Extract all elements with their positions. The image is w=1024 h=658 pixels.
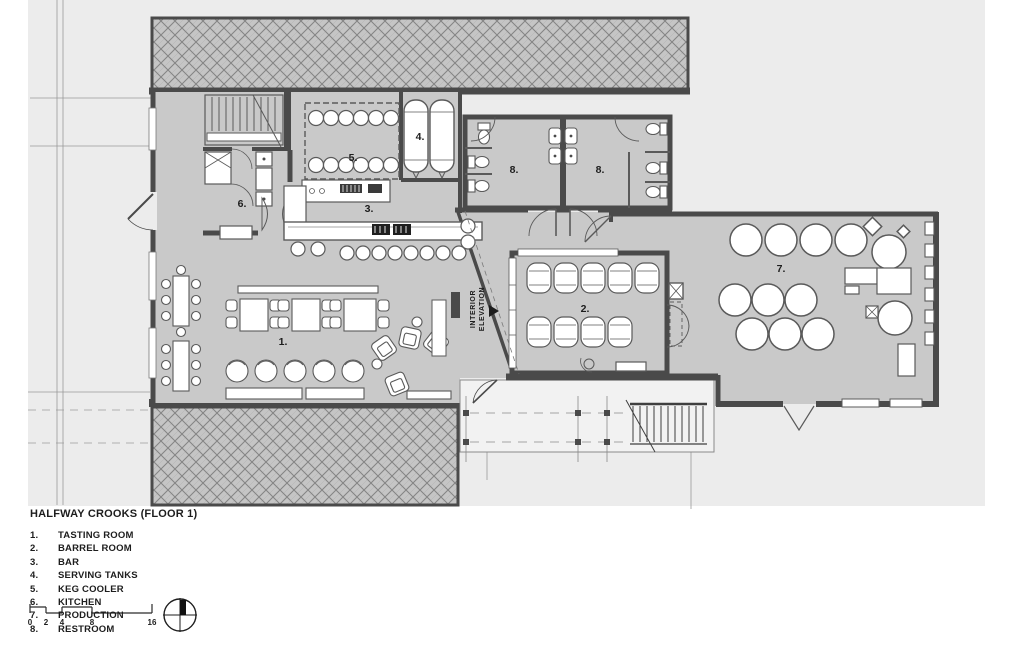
page-title: HALFWAY CROOKS (FLOOR 1) xyxy=(30,508,197,520)
legend-label: SERVING TANKS xyxy=(58,569,197,582)
label-bar: 3. xyxy=(365,203,374,215)
label-restroom-right: 8. xyxy=(596,164,605,176)
legend-block: HALFWAY CROOKS (FLOOR 1) 1.TASTING ROOM … xyxy=(30,508,197,636)
porch-deck xyxy=(460,380,714,462)
neighbor-building-south xyxy=(149,403,461,505)
legend-label: BAR xyxy=(58,556,197,569)
label-production: 7. xyxy=(777,263,786,275)
interior-elevation-label-1: INTERIOR xyxy=(470,290,477,328)
label-keg-cooler: 5. xyxy=(349,152,358,164)
label-serving-tanks: 4. xyxy=(416,131,425,143)
legend-label: KEG COOLER xyxy=(58,583,197,596)
legend-num: 4. xyxy=(30,569,58,582)
legend-num: 5. xyxy=(30,583,58,596)
legend-label: KITCHEN xyxy=(58,596,197,609)
legend-label: BARREL ROOM xyxy=(58,542,197,555)
floor-plan-sheet: INTERIOR ELEVATION 1. 2. 3. 4. 5. 6. 7. … xyxy=(0,0,1024,658)
legend-num: 8. xyxy=(30,623,58,636)
label-restroom-left: 8. xyxy=(510,164,519,176)
interior-stair xyxy=(205,95,283,147)
label-barrel-room: 2. xyxy=(581,303,590,315)
legend-label: PRODUCTION xyxy=(58,609,197,622)
legend-num: 6. xyxy=(30,596,58,609)
legend-num: 3. xyxy=(30,556,58,569)
legend-num: 1. xyxy=(30,529,58,542)
interior-elevation-label-2: ELEVATION xyxy=(479,287,486,331)
keg-cooler xyxy=(305,103,399,179)
legend-rows: 1.TASTING ROOM 2.BARREL ROOM 3.BAR 4.SER… xyxy=(30,529,197,636)
label-tasting-room: 1. xyxy=(279,336,288,348)
communal-tables xyxy=(226,286,389,331)
legend-label: TASTING ROOM xyxy=(58,529,197,542)
neighbor-building-north xyxy=(149,18,690,91)
label-kitchen: 6. xyxy=(238,198,247,210)
legend-num: 7. xyxy=(30,609,58,622)
legend-label: RESTROOM xyxy=(58,623,197,636)
legend-num: 2. xyxy=(30,542,58,555)
